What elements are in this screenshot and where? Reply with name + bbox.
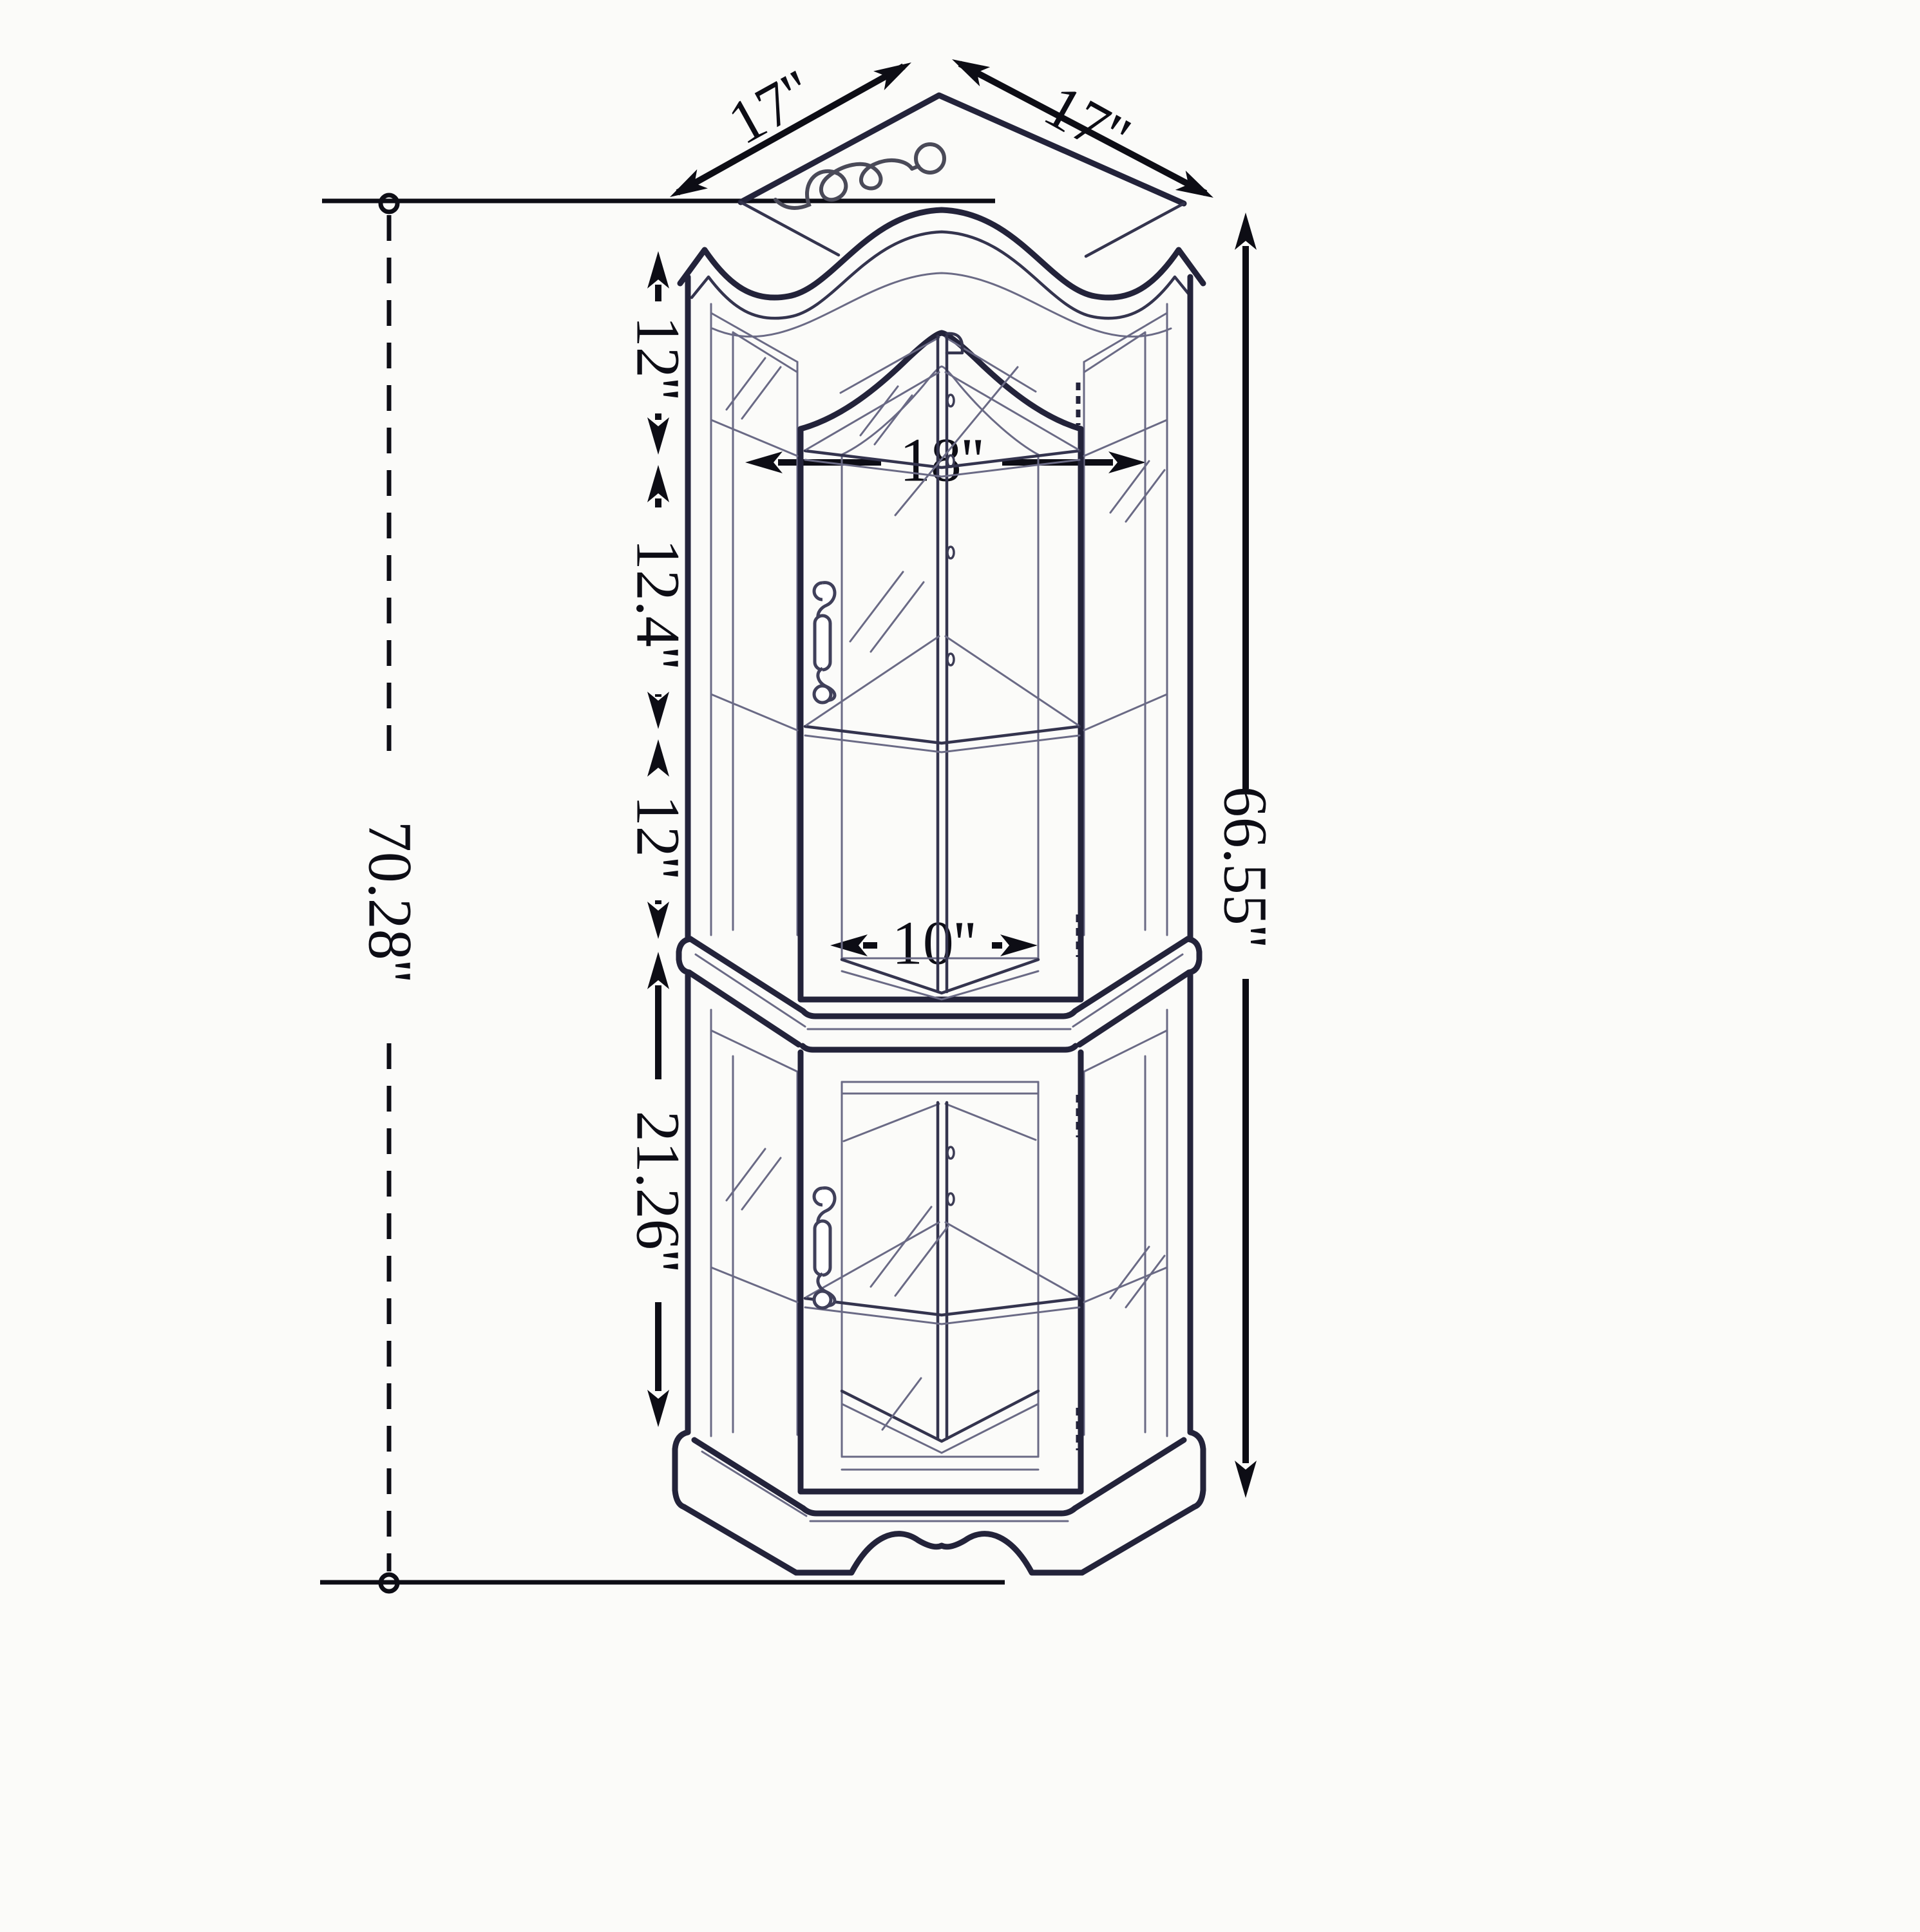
- upper-door-handle: [814, 583, 835, 703]
- dimension-top-depth-right: 17'': [947, 50, 1219, 207]
- dimension-lower-section-height: 21.26'': [624, 952, 693, 1427]
- crown-pediment: [680, 210, 1203, 337]
- lower-interior: [711, 1103, 1167, 1453]
- dim-label-upper-shelf-bottom: 12'': [624, 795, 693, 880]
- upper-interior: [711, 334, 1167, 999]
- dim-label-top-depth-right: 17'': [1034, 71, 1141, 172]
- top-datum-point: [381, 195, 397, 212]
- dim-label-cabinet-height: 66.55'': [1212, 786, 1280, 948]
- cabinet-dimension-diagram: 70.28'' 66.55'' 17'' 17'' 12'' 12.4'': [0, 0, 1920, 1932]
- dimension-upper-shelf-bottom: 12'': [624, 739, 693, 939]
- dim-label-lower-section-height: 21.26'': [624, 1111, 693, 1273]
- dim-label-upper-shelf-middle: 12.4'': [624, 539, 693, 670]
- dimension-cabinet-height: 66.55'': [1212, 213, 1280, 1498]
- power-cord-icon: [775, 144, 944, 208]
- dimension-upper-shelf-middle: 12.4'': [624, 465, 693, 729]
- lower-floor: [842, 1391, 1038, 1453]
- lower-glass-door: [801, 1052, 1081, 1492]
- diagram-stage: 70.28'' 66.55'' 17'' 17'' 12'' 12.4'': [0, 0, 1920, 1932]
- cabinet-drawing: [675, 95, 1203, 1573]
- dim-label-lower-door-width: 10'': [892, 909, 976, 978]
- dim-label-upper-shelf-top: 12'': [624, 316, 693, 401]
- dim-label-top-depth-left: 17'': [717, 57, 824, 158]
- base-plinth: [675, 1432, 1203, 1573]
- dim-label-overall-height: 70.28'': [356, 821, 425, 983]
- scalloped-apron: [796, 1534, 1082, 1573]
- dimension-overall-height: 70.28'': [356, 195, 425, 1591]
